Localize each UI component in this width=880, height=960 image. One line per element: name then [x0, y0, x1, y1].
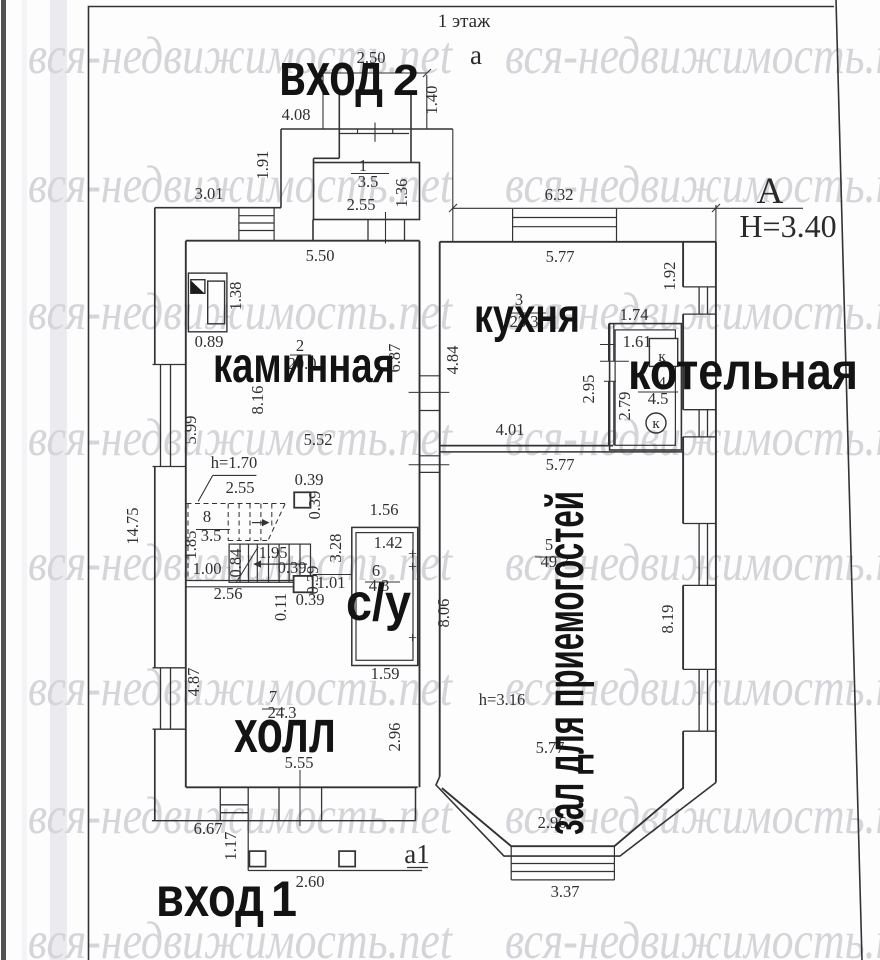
svg-text:вход: вход	[156, 865, 264, 928]
svg-text:котельная: котельная	[628, 343, 858, 401]
svg-text:14.75: 14.75	[123, 507, 142, 544]
svg-text:3.01: 3.01	[195, 184, 224, 203]
svg-text:1.56: 1.56	[370, 500, 399, 519]
svg-text:вся-недвижимость.net: вся-недвижимость.net	[505, 912, 880, 960]
svg-text:1.40: 1.40	[422, 86, 441, 115]
svg-text:1.00: 1.00	[193, 559, 222, 578]
svg-text:Н=3.40: Н=3.40	[739, 208, 836, 244]
svg-text:h=3.16: h=3.16	[479, 690, 525, 709]
svg-text:а: а	[470, 40, 482, 70]
svg-text:вход: вход	[279, 41, 383, 108]
svg-text:2.56: 2.56	[214, 584, 243, 603]
svg-text:0.84: 0.84	[226, 549, 245, 578]
svg-text:8.06: 8.06	[434, 599, 453, 628]
svg-text:2.96: 2.96	[385, 723, 404, 752]
svg-text:0.39: 0.39	[303, 566, 322, 595]
svg-text:2.60: 2.60	[296, 872, 325, 891]
svg-text:3.37: 3.37	[551, 882, 580, 901]
svg-text:вся-недвижимость.net: вся-недвижимость.net	[505, 27, 880, 85]
svg-text:А: А	[757, 171, 784, 212]
svg-text:8.19: 8.19	[658, 605, 677, 634]
svg-text:вся-недвижимость.net: вся-недвижимость.net	[28, 27, 453, 85]
svg-text:холл: холл	[234, 698, 336, 765]
svg-text:4.84: 4.84	[443, 346, 462, 375]
svg-text:1.74: 1.74	[620, 305, 649, 324]
svg-text:h=1.70: h=1.70	[211, 453, 257, 472]
svg-text:0.39: 0.39	[295, 470, 324, 489]
svg-text:5.99: 5.99	[181, 416, 200, 445]
svg-text:+: +	[408, 630, 417, 647]
svg-text:5.50: 5.50	[306, 246, 335, 265]
svg-text:5.77: 5.77	[546, 455, 575, 474]
svg-text:2.95: 2.95	[579, 375, 598, 404]
svg-text:3.5: 3.5	[201, 526, 222, 545]
svg-text:1.92: 1.92	[660, 262, 679, 291]
svg-text:кухня: кухня	[474, 290, 580, 343]
svg-text:2: 2	[393, 56, 419, 105]
svg-text:4.01: 4.01	[496, 420, 525, 439]
svg-text:4.87: 4.87	[184, 668, 203, 697]
svg-text:1.59: 1.59	[371, 664, 400, 683]
svg-text:1.91: 1.91	[253, 151, 272, 180]
svg-text:5.52: 5.52	[304, 430, 333, 449]
svg-text:3.28: 3.28	[326, 534, 345, 563]
svg-text:2.55: 2.55	[347, 195, 376, 214]
svg-text:1.38: 1.38	[226, 282, 245, 311]
svg-text:5.77: 5.77	[546, 247, 575, 266]
svg-text:вся-недвижимость.net: вся-недвижимость.net	[28, 156, 453, 214]
svg-text:каминная: каминная	[213, 337, 395, 393]
svg-text:3.5: 3.5	[358, 172, 379, 191]
svg-text:1: 1	[271, 871, 297, 927]
svg-text:6.67: 6.67	[194, 819, 223, 838]
svg-text:к: к	[652, 416, 660, 432]
svg-text:а1: а1	[404, 839, 429, 869]
svg-text:с/у: с/у	[346, 574, 411, 632]
svg-text:1.36: 1.36	[392, 179, 411, 208]
svg-text:1.17: 1.17	[221, 832, 240, 861]
svg-text:1.85: 1.85	[181, 531, 200, 560]
svg-text:8: 8	[203, 507, 211, 526]
svg-text:2.55: 2.55	[226, 478, 255, 497]
svg-text:1.42: 1.42	[374, 533, 403, 552]
svg-text:зал для приемогостей: зал для приемогостей	[537, 491, 595, 835]
svg-text:6.32: 6.32	[545, 185, 574, 204]
svg-text:вся-недвижимость.net: вся-недвижимость.net	[28, 787, 453, 845]
svg-text:1 этаж: 1 этаж	[438, 11, 491, 32]
svg-text:0.39: 0.39	[305, 491, 324, 520]
svg-text:0.11: 0.11	[271, 593, 290, 621]
